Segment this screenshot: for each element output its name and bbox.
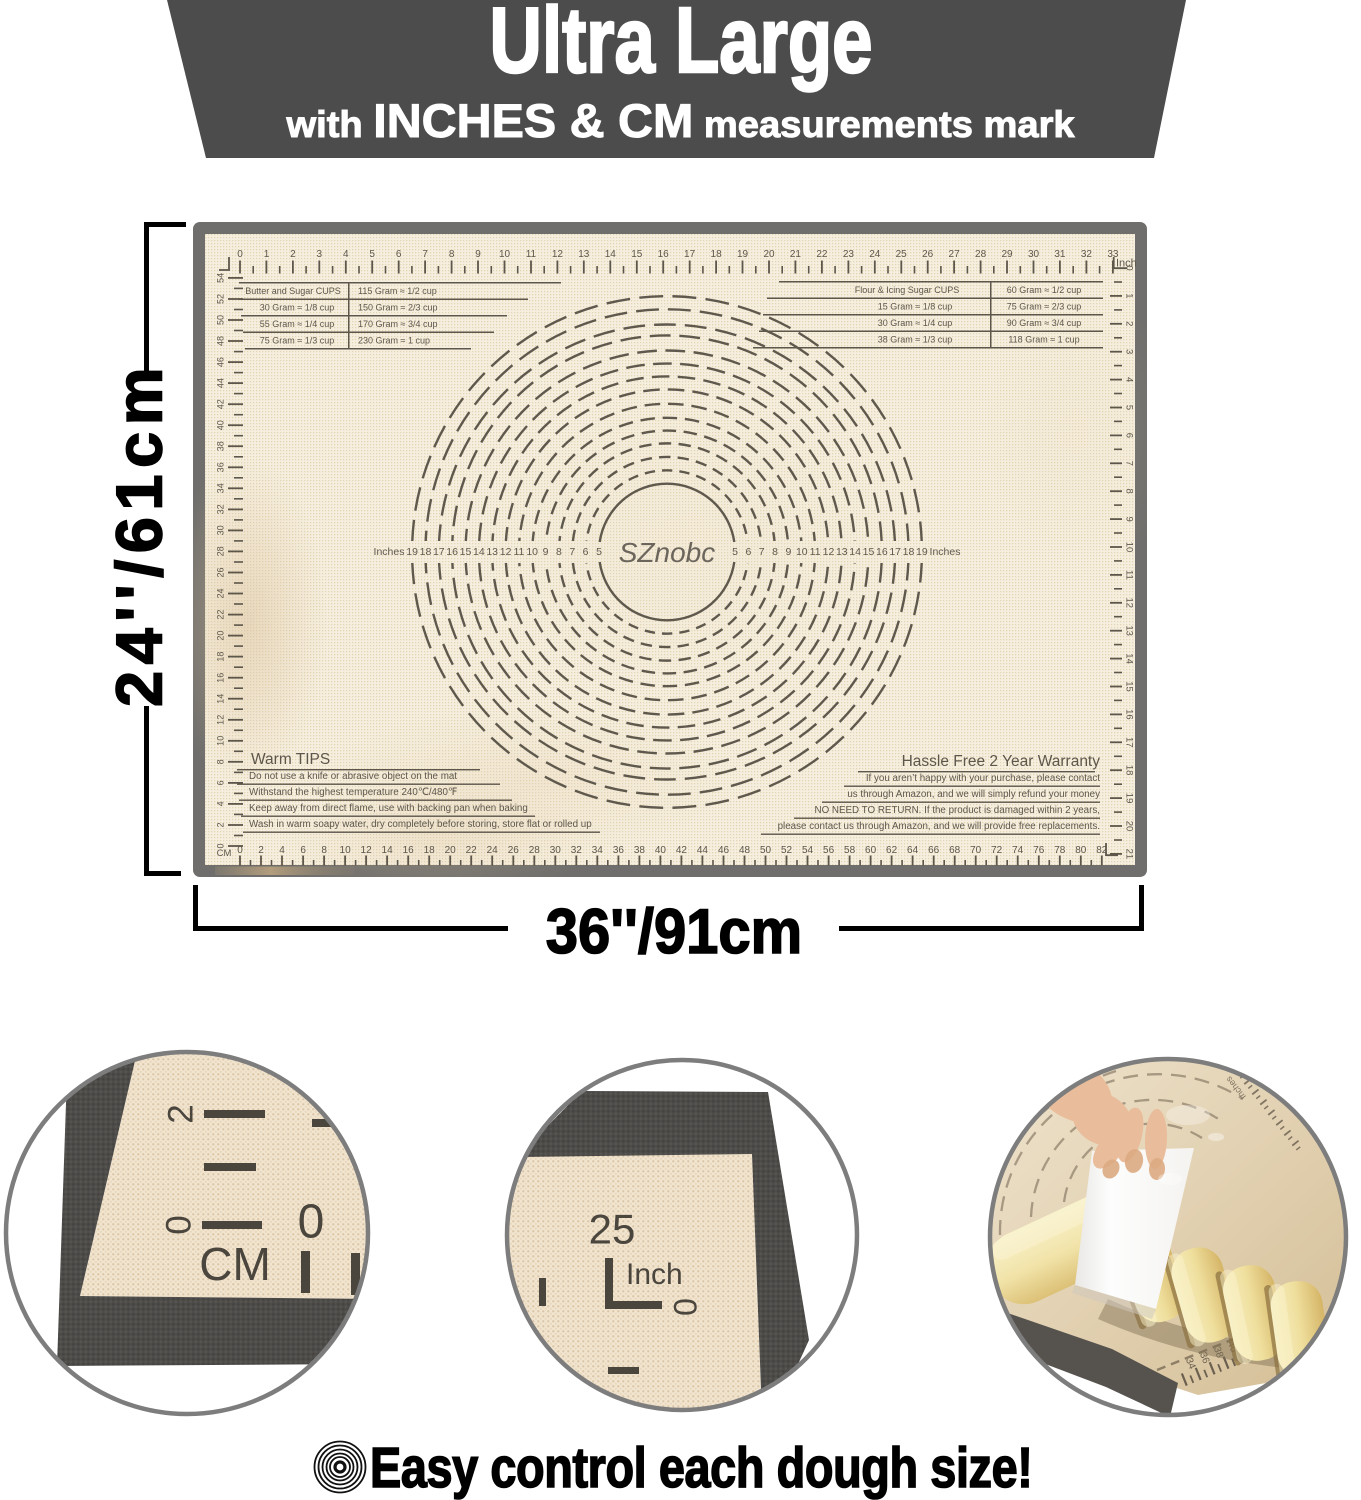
svg-text:52: 52 [781,845,793,856]
svg-text:13: 13 [578,249,590,260]
svg-text:Inches: Inches [374,546,405,558]
svg-text:8: 8 [215,759,225,764]
svg-text:62: 62 [886,845,898,856]
svg-text:4: 4 [343,249,349,260]
svg-text:20: 20 [445,845,457,856]
svg-text:16: 16 [403,845,415,856]
svg-text:70: 70 [970,845,982,856]
svg-text:0: 0 [160,1215,199,1234]
svg-text:Butter and Sugar CUPS: Butter and Sugar CUPS [245,286,341,296]
svg-text:5: 5 [732,546,738,558]
svg-text:66: 66 [928,845,940,856]
svg-text:18: 18 [903,546,915,558]
svg-text:48: 48 [739,845,751,856]
svg-text:10: 10 [1123,542,1134,553]
svg-text:17: 17 [684,249,696,260]
svg-text:28: 28 [529,845,541,856]
svg-text:11: 11 [1123,570,1134,580]
svg-text:26: 26 [508,845,520,856]
svg-text:18: 18 [424,845,436,856]
svg-text:38: 38 [215,441,225,451]
svg-text:36: 36 [613,845,625,856]
svg-text:68: 68 [949,845,961,856]
svg-text:74: 74 [1012,845,1024,856]
svg-text:8: 8 [772,546,778,558]
svg-text:CM: CM [217,848,232,859]
svg-text:4: 4 [215,801,225,806]
svg-text:48: 48 [215,336,225,346]
svg-text:2: 2 [258,845,264,856]
svg-text:118 Gram ≈ 1 cup: 118 Gram ≈ 1 cup [1008,335,1079,345]
svg-text:44: 44 [215,378,225,388]
svg-text:Keep away from direct flame, u: Keep away from direct flame, use with ba… [249,803,528,814]
svg-text:54: 54 [802,845,814,856]
svg-text:24: 24 [869,249,881,260]
svg-text:170 Gram ≈ 3/4 cup: 170 Gram ≈ 3/4 cup [358,319,437,329]
svg-text:14: 14 [849,546,861,558]
svg-text:5: 5 [1123,405,1134,410]
svg-text:8: 8 [449,249,455,260]
svg-text:26: 26 [922,249,934,260]
svg-text:28: 28 [975,249,987,260]
svg-text:17: 17 [1123,737,1134,748]
svg-text:32: 32 [1081,249,1093,260]
svg-text:0: 0 [237,249,243,260]
svg-text:11: 11 [810,546,821,558]
svg-text:14: 14 [382,845,394,856]
svg-text:31: 31 [1054,249,1066,260]
svg-text:3: 3 [1123,349,1134,354]
svg-text:36: 36 [215,462,225,472]
svg-text:8: 8 [556,546,562,558]
svg-text:15: 15 [460,546,472,558]
svg-text:18: 18 [1123,765,1134,776]
svg-text:50: 50 [215,315,225,325]
svg-text:21: 21 [1123,849,1134,860]
svg-text:34: 34 [215,483,225,493]
svg-text:75 Gram ≈ 2/3 cup: 75 Gram ≈ 2/3 cup [1007,302,1081,312]
svg-text:150 Gram ≈ 2/3 cup: 150 Gram ≈ 2/3 cup [358,303,437,313]
svg-text:15: 15 [631,249,643,260]
svg-text:9: 9 [785,546,791,558]
svg-text:18: 18 [215,652,225,662]
svg-text:38: 38 [634,845,646,856]
svg-text:11: 11 [513,546,524,558]
svg-text:Inch: Inch [626,1258,683,1291]
svg-text:6: 6 [215,780,225,785]
svg-text:please contact us through Amaz: please contact us through Amazon, and we… [778,821,1100,832]
svg-text:17: 17 [433,546,445,558]
svg-text:0: 0 [667,1298,703,1316]
svg-text:3: 3 [317,249,323,260]
svg-text:22: 22 [215,610,225,620]
svg-text:6: 6 [583,546,589,558]
svg-text:16: 16 [658,249,670,260]
svg-text:SZnobc: SZnobc [619,537,716,568]
svg-text:4: 4 [279,845,285,856]
svg-text:12: 12 [823,546,835,558]
svg-text:Wash in warm soapy water, dry: Wash in warm soapy water, dry completely… [249,819,592,830]
svg-text:15 Gram ≈ 1/8 cup: 15 Gram ≈ 1/8 cup [878,302,952,312]
svg-text:9: 9 [1123,516,1134,521]
svg-text:10: 10 [526,546,538,558]
svg-text:14: 14 [605,249,617,260]
svg-text:19: 19 [737,249,749,260]
svg-text:32: 32 [571,845,583,856]
svg-text:7: 7 [759,546,765,558]
svg-text:2: 2 [290,249,296,260]
svg-text:52: 52 [215,294,225,304]
svg-text:9: 9 [543,546,549,558]
svg-text:64: 64 [907,845,919,856]
svg-text:8: 8 [321,845,327,856]
svg-text:8: 8 [1123,489,1134,494]
svg-text:Hassle Free 2 Year Warranty: Hassle Free 2 Year Warranty [902,753,1101,770]
svg-text:4: 4 [1123,377,1134,382]
svg-text:60 Gram ≈ 1/2 cup: 60 Gram ≈ 1/2 cup [1007,285,1081,295]
svg-text:7: 7 [422,249,428,260]
svg-text:Inches: Inches [930,546,961,558]
svg-text:20: 20 [1123,821,1134,832]
svg-text:2: 2 [215,822,225,827]
svg-text:22: 22 [816,249,828,260]
svg-text:76: 76 [1033,845,1045,856]
svg-text:115 Gram ≈ 1/2 cup: 115 Gram ≈ 1/2 cup [358,286,437,296]
svg-text:Flour & Icing Sugar CUPS: Flour & Icing Sugar CUPS [855,285,960,295]
svg-text:9: 9 [475,249,481,260]
svg-text:12: 12 [361,845,373,856]
svg-text:30 Gram ≈ 1/8 cup: 30 Gram ≈ 1/8 cup [260,303,334,313]
svg-text:30: 30 [550,845,562,856]
svg-text:7: 7 [1123,461,1134,466]
svg-text:2: 2 [162,1104,201,1123]
svg-text:If you aren’t happy with your: If you aren’t happy with your purchase, … [866,773,1100,784]
svg-text:us through Amazon, and we wil: us through Amazon, and we will simply re… [847,789,1100,800]
svg-text:38 Gram ≈ 1/3 cup: 38 Gram ≈ 1/3 cup [878,335,952,345]
svg-text:75 Gram ≈ 1/3 cup: 75 Gram ≈ 1/3 cup [260,336,334,346]
svg-text:16: 16 [215,673,225,683]
svg-text:78: 78 [1054,845,1066,856]
svg-text:25: 25 [589,1206,636,1253]
svg-text:32: 32 [215,504,225,514]
svg-text:30 Gram ≈ 1/4 cup: 30 Gram ≈ 1/4 cup [878,318,952,328]
svg-text:10: 10 [340,845,352,856]
svg-text:56: 56 [823,845,835,856]
svg-text:58: 58 [844,845,856,856]
svg-text:42: 42 [215,399,225,409]
svg-text:Warm TIPS: Warm TIPS [251,751,330,768]
svg-text:40: 40 [655,845,667,856]
svg-text:55 Gram ≈ 1/4 cup: 55 Gram ≈ 1/4 cup [260,319,334,329]
svg-text:7: 7 [569,546,575,558]
svg-text:54: 54 [215,273,225,283]
svg-text:17: 17 [889,546,901,558]
svg-text:13: 13 [486,546,498,558]
svg-text:90 Gram ≈ 3/4 cup: 90 Gram ≈ 3/4 cup [1007,318,1081,328]
svg-text:Do not use a knife or abrasive: Do not use a knife or abrasive object on… [249,771,457,782]
svg-text:22: 22 [466,845,478,856]
svg-text:14: 14 [473,546,485,558]
svg-text:40: 40 [215,420,225,430]
svg-text:16: 16 [876,546,888,558]
svg-text:46: 46 [215,357,225,367]
svg-text:12: 12 [552,249,564,260]
svg-text:18: 18 [420,546,432,558]
svg-text:CM: CM [199,1238,271,1290]
svg-text:13: 13 [836,546,848,558]
svg-text:27: 27 [949,249,961,260]
svg-text:NO NEED TO RETURN. If the prod: NO NEED TO RETURN. If the product is dam… [815,805,1101,816]
svg-text:0: 0 [237,845,243,856]
svg-text:230 Gram ≈ 1 cup: 230 Gram ≈ 1 cup [358,336,430,346]
svg-text:18: 18 [711,249,723,260]
svg-text:25: 25 [896,249,908,260]
svg-text:12: 12 [215,715,225,725]
svg-text:20: 20 [763,249,775,260]
svg-text:50: 50 [760,845,772,856]
svg-text:6: 6 [1123,433,1134,438]
svg-text:29: 29 [1001,249,1013,260]
svg-text:72: 72 [991,845,1003,856]
svg-text:46: 46 [718,845,730,856]
svg-text:44: 44 [697,845,709,856]
svg-text:13: 13 [1123,625,1134,636]
svg-text:11: 11 [526,249,537,260]
svg-text:16: 16 [1123,709,1134,720]
svg-text:1: 1 [1123,293,1134,298]
svg-text:12: 12 [1123,598,1134,609]
svg-text:10: 10 [796,546,808,558]
svg-text:6: 6 [300,845,306,856]
svg-text:12: 12 [500,546,512,558]
svg-text:80: 80 [1075,845,1087,856]
svg-text:6: 6 [396,249,402,260]
svg-text:23: 23 [843,249,855,260]
svg-text:26: 26 [215,567,225,577]
svg-text:19: 19 [1123,793,1134,804]
svg-text:14: 14 [1123,653,1134,664]
svg-text:60: 60 [865,845,877,856]
svg-text:Withstand the highest temperat: Withstand the highest temperature 240℃/4… [249,787,457,798]
svg-text:21: 21 [790,249,802,260]
svg-text:15: 15 [863,546,875,558]
svg-text:42: 42 [676,845,688,856]
svg-text:28: 28 [215,546,225,556]
svg-text:5: 5 [369,249,375,260]
svg-text:2: 2 [1123,321,1134,326]
svg-text:10: 10 [215,736,225,746]
svg-text:19: 19 [916,546,928,558]
svg-text:24: 24 [487,845,499,856]
svg-text:1: 1 [264,249,270,260]
svg-text:5: 5 [596,546,602,558]
svg-text:30: 30 [215,525,225,535]
svg-text:20: 20 [215,631,225,641]
svg-text:34: 34 [592,845,604,856]
svg-text:10: 10 [499,249,511,260]
svg-text:0: 0 [298,1196,325,1249]
svg-text:14: 14 [215,694,225,704]
svg-text:15: 15 [1123,681,1134,692]
svg-text:19: 19 [406,546,418,558]
svg-text:16: 16 [446,546,458,558]
svg-text:30: 30 [1028,249,1040,260]
svg-text:24: 24 [215,588,225,598]
svg-text:6: 6 [745,546,751,558]
